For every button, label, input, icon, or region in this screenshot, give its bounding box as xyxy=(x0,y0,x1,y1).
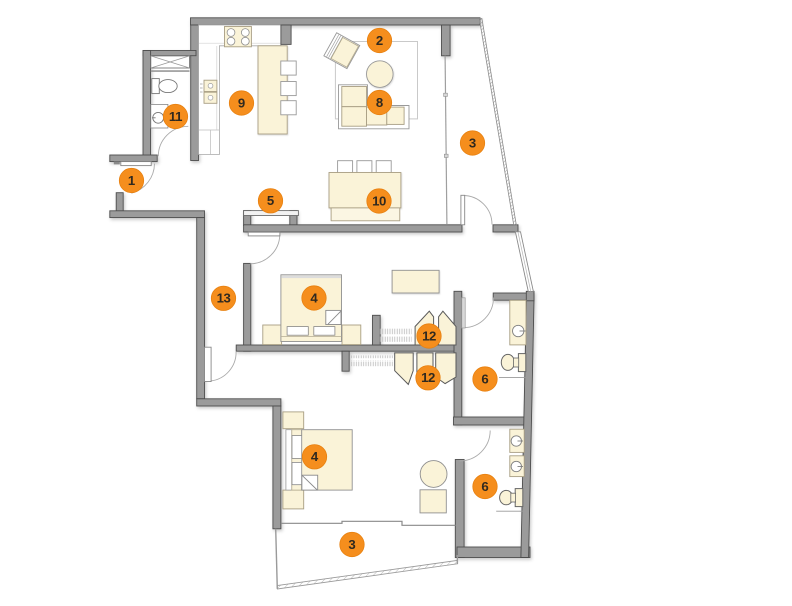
svg-text:10: 10 xyxy=(372,193,386,208)
svg-text:6: 6 xyxy=(481,371,488,386)
svg-text:6: 6 xyxy=(481,479,488,494)
svg-text:2: 2 xyxy=(376,33,383,48)
svg-text:8: 8 xyxy=(376,95,383,110)
svg-text:12: 12 xyxy=(422,328,436,343)
svg-text:12: 12 xyxy=(421,370,435,385)
svg-text:11: 11 xyxy=(169,109,182,124)
svg-text:1: 1 xyxy=(128,173,135,188)
svg-text:4: 4 xyxy=(310,290,318,305)
svg-text:5: 5 xyxy=(267,193,274,208)
svg-text:3: 3 xyxy=(469,135,476,150)
svg-text:3: 3 xyxy=(348,537,355,552)
svg-text:9: 9 xyxy=(238,95,245,110)
svg-text:4: 4 xyxy=(311,449,319,464)
svg-text:13: 13 xyxy=(217,291,231,306)
